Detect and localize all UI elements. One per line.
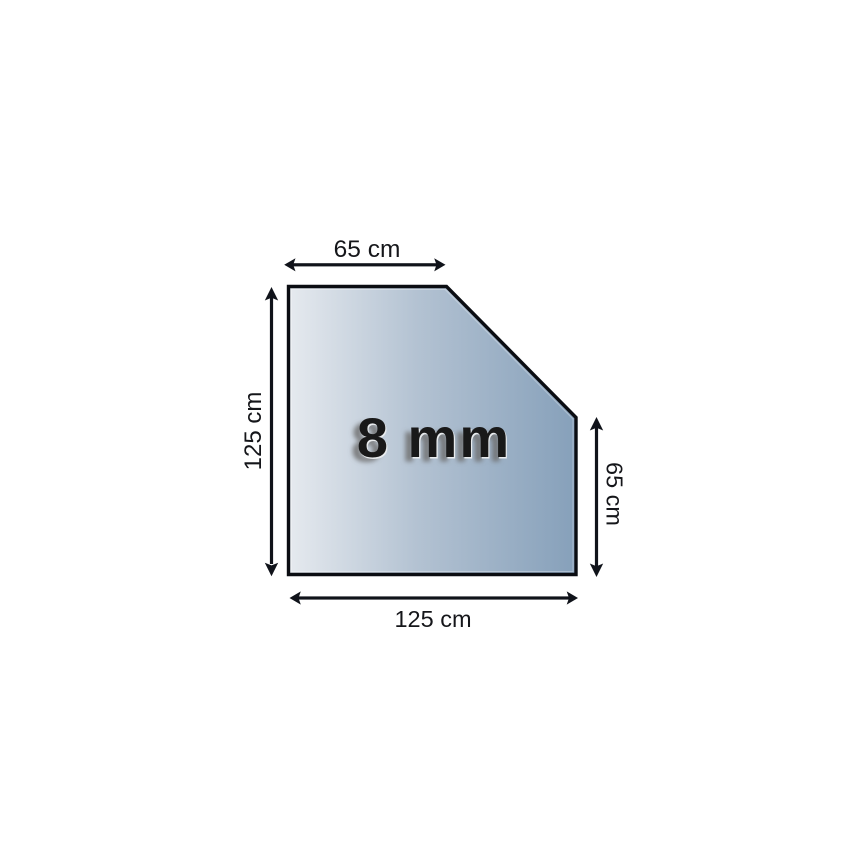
svg-text:65 cm: 65 cm — [602, 462, 628, 526]
svg-text:125 cm: 125 cm — [240, 392, 267, 471]
svg-text:125 cm: 125 cm — [394, 606, 471, 632]
svg-text:8 mm: 8 mm — [357, 406, 511, 469]
svg-text:65 cm: 65 cm — [334, 236, 401, 263]
